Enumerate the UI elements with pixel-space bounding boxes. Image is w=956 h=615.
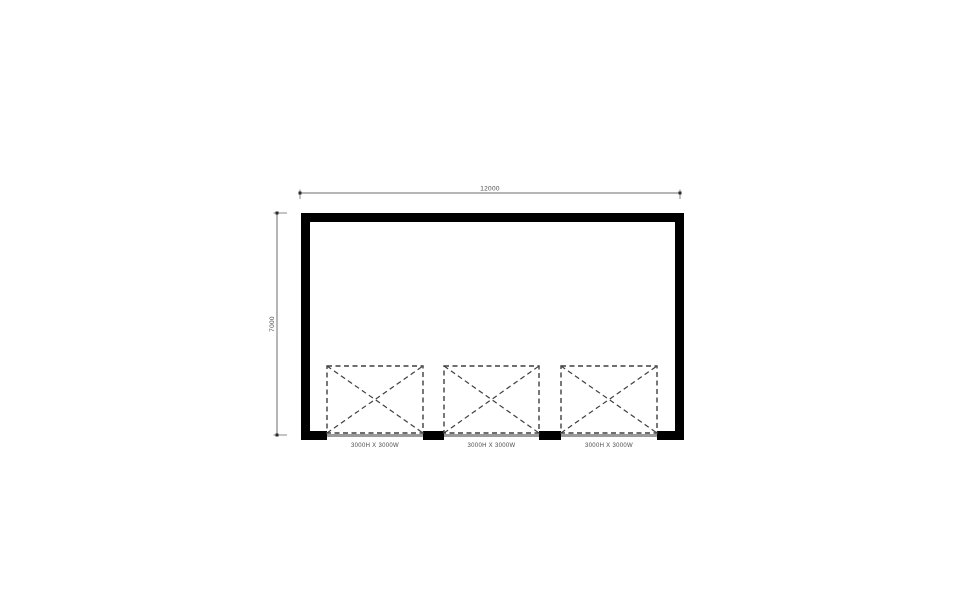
width-dimension-dot-right xyxy=(679,192,682,195)
door-1-label: 3000H X 3000W xyxy=(351,443,399,449)
width-dimension: 12000 xyxy=(299,186,682,200)
height-dimension: 7000 xyxy=(269,212,287,437)
width-dimension-dot-left xyxy=(299,192,302,195)
door-3-threshold xyxy=(561,434,657,437)
height-dimension-label: 7000 xyxy=(269,316,276,332)
door-1-threshold xyxy=(327,434,423,437)
building-wall xyxy=(306,218,680,436)
floor-plan-svg: 3000H X 3000W 3000H X 3000W 3000H X 3000… xyxy=(0,0,956,615)
width-dimension-label: 12000 xyxy=(480,186,500,193)
building-outline xyxy=(306,218,680,442)
door-2-label: 3000H X 3000W xyxy=(468,443,516,449)
drawing-canvas: 3000H X 3000W 3000H X 3000W 3000H X 3000… xyxy=(0,0,956,615)
door-3-label: 3000H X 3000W xyxy=(585,443,633,449)
height-dimension-dot-top xyxy=(276,212,279,215)
height-dimension-dot-bottom xyxy=(276,434,279,437)
door-2-threshold xyxy=(444,434,539,437)
